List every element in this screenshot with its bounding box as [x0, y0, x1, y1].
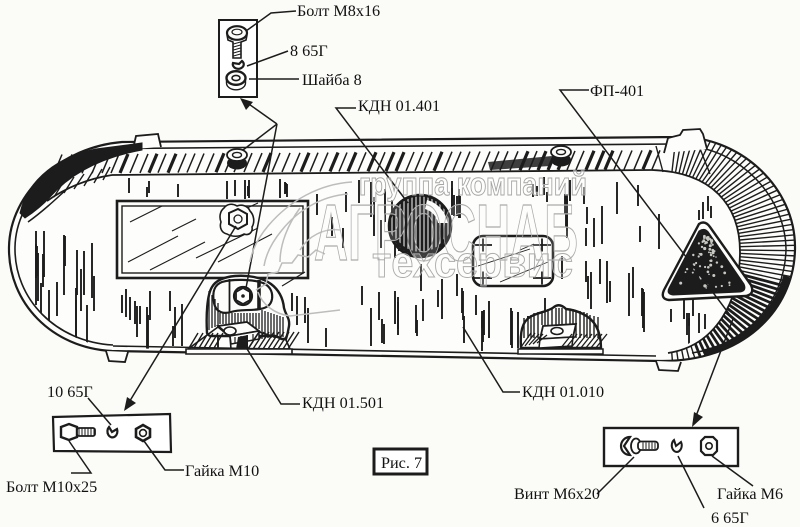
svg-text:КДН 01.401: КДН 01.401 [358, 97, 440, 115]
svg-text:ФП-401: ФП-401 [590, 82, 644, 100]
svg-text:Болт М10х25: Болт М10х25 [6, 478, 97, 496]
svg-text:8 65Г: 8 65Г [290, 42, 328, 60]
svg-text:10 65Г: 10 65Г [47, 383, 93, 401]
svg-text:6 65Г: 6 65Г [711, 509, 749, 527]
svg-text:КДН 01.010: КДН 01.010 [522, 383, 604, 401]
svg-text:техсервис: техсервис [372, 238, 573, 287]
svg-text:Гайка М10: Гайка М10 [185, 462, 259, 480]
svg-text:Винт М6х20: Винт М6х20 [514, 485, 600, 503]
svg-text:КДН 01.501: КДН 01.501 [302, 394, 384, 412]
svg-text:Болт М8х16: Болт М8х16 [297, 2, 380, 20]
svg-text:Рис. 7: Рис. 7 [381, 454, 422, 472]
svg-text:Шайба 8: Шайба 8 [302, 71, 362, 89]
svg-text:Гайка М6: Гайка М6 [717, 485, 783, 503]
